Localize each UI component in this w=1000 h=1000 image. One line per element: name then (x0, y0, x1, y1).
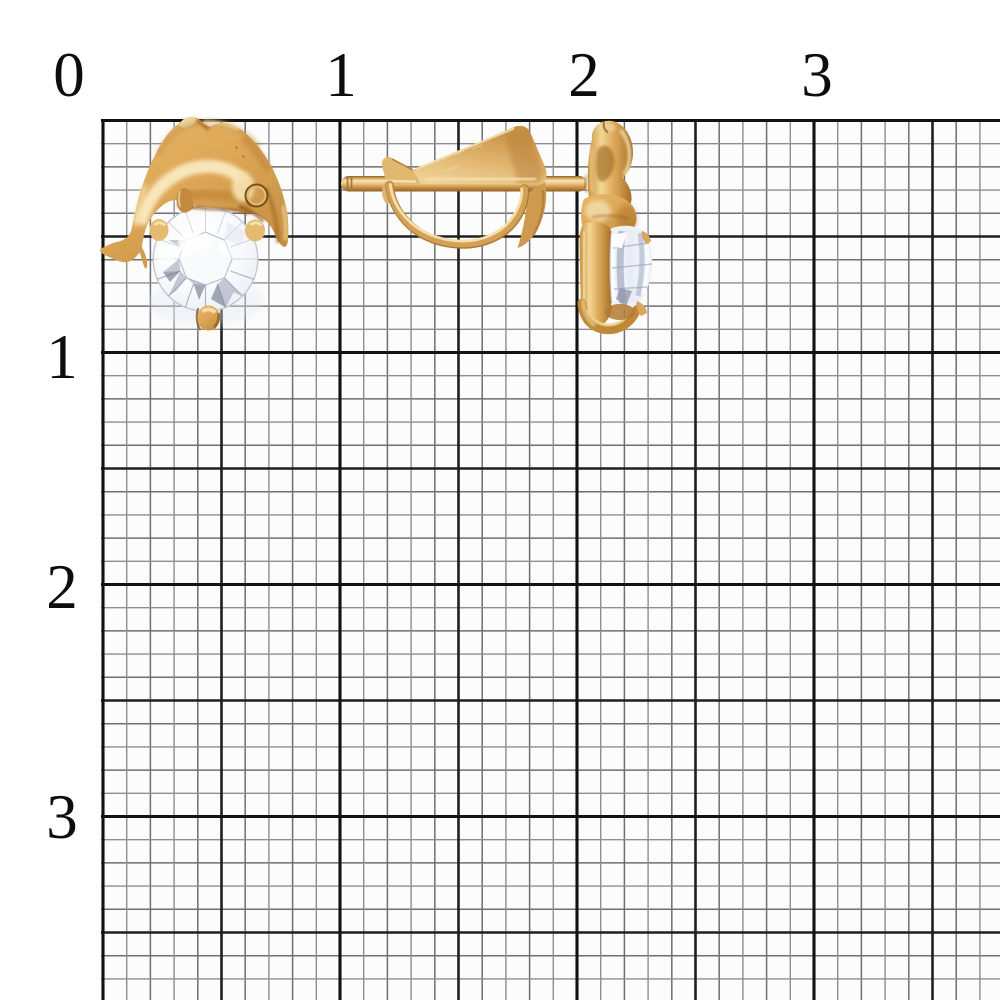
svg-text:2: 2 (568, 40, 600, 110)
svg-text:1: 1 (46, 322, 78, 392)
svg-text:3: 3 (46, 782, 78, 852)
svg-text:0: 0 (53, 40, 85, 110)
svg-text:3: 3 (801, 40, 833, 110)
svg-text:1: 1 (325, 40, 357, 110)
svg-text:2: 2 (46, 552, 78, 622)
